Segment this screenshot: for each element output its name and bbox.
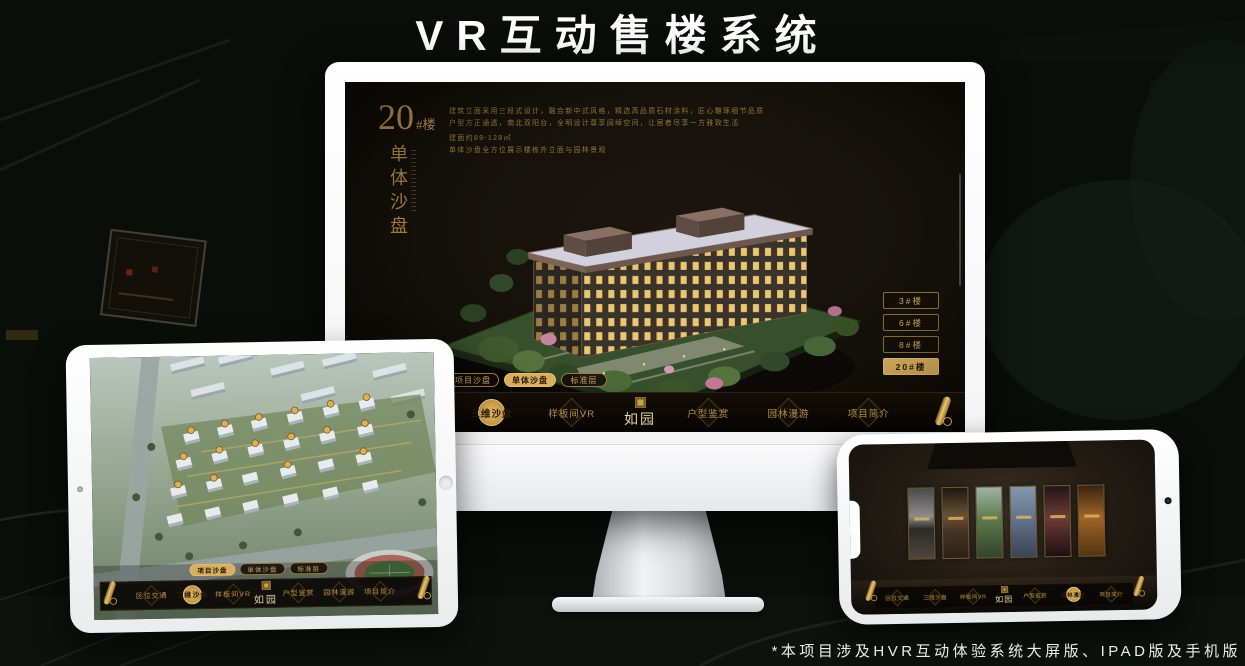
sub-tab-single-sandbox[interactable]: 单体沙盘 [504, 373, 556, 387]
scene-thumbnail[interactable] [1077, 484, 1105, 556]
monitor-stand-base [552, 597, 764, 612]
sub-tab-project-sandbox[interactable]: 项目沙盘 [447, 373, 499, 387]
description-line: 建面约89-128㎡ [449, 133, 789, 145]
sub-tab-standard-floor[interactable]: 标准层 [289, 562, 328, 575]
nav-item-label: 三维沙盘 [470, 406, 512, 420]
nav-item-label: 样板间VR [215, 589, 251, 600]
brand-logo: 如园 [254, 581, 278, 606]
description-line: 建筑立面采用三段式设计，融合新中式风格，精选高品质石材涂料，匠心雕琢细节品质 [449, 106, 789, 118]
nav-item-label: 项目简介 [848, 406, 890, 420]
seal-icon [261, 581, 270, 590]
building-number-suffix: #楼 [416, 117, 436, 132]
monitor-stand-neck [592, 506, 726, 602]
floor-button-6[interactable]: 6#楼 [883, 314, 939, 331]
nav-item-3d-sandbox[interactable]: 三维沙盘 [919, 589, 951, 605]
ipad-screen: 项目沙盘 单体沙盘 标准层 区位交通 三维沙盘 样板间VR 如园 户型鉴赏 园林… [90, 352, 439, 620]
nav-item-label: 户型鉴赏 [1023, 591, 1047, 599]
scroll-ornament-icon [1130, 576, 1146, 597]
nav-item-garden-roam[interactable]: 园林漫游 [319, 582, 359, 602]
nav-item-label: 区位交通 [885, 593, 909, 601]
scene-thumbnail[interactable] [907, 487, 935, 559]
nav-item-label: 户型鉴赏 [283, 588, 315, 599]
nav-item-unit-plans[interactable]: 户型鉴赏 [680, 399, 736, 427]
screen-title-vertical: 单体沙盘 [385, 144, 411, 240]
nav-item-3d-sandbox[interactable]: 三维沙盘 [464, 399, 520, 427]
nav-item-label: 三维沙盘 [176, 589, 208, 600]
brand-logo-text: 如园 [254, 591, 278, 606]
nav-item-showroom-vr[interactable]: 样板间VR [544, 399, 600, 427]
scene-thumbnail[interactable] [1043, 485, 1071, 557]
scroll-ornament-icon [862, 581, 878, 602]
phone-notch [849, 501, 861, 559]
brand-logo-text: 如园 [624, 409, 656, 429]
nav-item-project-intro[interactable]: 项目简介 [1095, 586, 1127, 602]
phone-screen: 区位交通 三维沙盘 样板间VR 如园 户型鉴赏 园林漫游 项目简介 [849, 439, 1158, 614]
nav-item-location-traffic[interactable]: 区位交通 [131, 586, 171, 606]
scene-gallery [907, 484, 1105, 559]
nav-item-label: 园林漫游 [323, 587, 355, 598]
scene-thumbnail[interactable] [1009, 486, 1037, 558]
sub-tab-project-sandbox[interactable]: 项目沙盘 [189, 563, 235, 576]
nav-item-label: 项目简介 [1099, 590, 1123, 598]
front-camera-icon [77, 486, 83, 492]
scroll-ornament-icon [100, 582, 118, 606]
seal-icon [1001, 586, 1008, 593]
nav-item-project-intro[interactable]: 项目简介 [360, 582, 400, 602]
nav-item-garden-roam[interactable]: 园林漫游 [761, 399, 817, 427]
nav-item-label: 园林漫游 [767, 406, 809, 420]
building-number: 20#楼 [378, 96, 436, 138]
floor-selector: 3#楼 6#楼 8#楼 20#楼 [883, 292, 939, 375]
scene-thumbnail[interactable] [941, 487, 969, 559]
page-title: VR互动售楼系统 [0, 2, 1245, 63]
description-line: 单体沙盘全方位展示楼栋外立面与园林景观 [449, 145, 789, 157]
brand-logo: 如园 [624, 397, 656, 429]
floor-button-8[interactable]: 8#楼 [883, 336, 939, 353]
screen-scrollbar[interactable] [959, 174, 961, 286]
phone-device: 区位交通 三维沙盘 样板间VR 如园 户型鉴赏 园林漫游 项目简介 [836, 429, 1181, 625]
footnote-text: *本项目涉及HVR互动体验系统大屏版、IPAD版及手机版 [772, 640, 1241, 661]
nav-item-label: 户型鉴赏 [687, 406, 729, 420]
nav-item-showroom-vr[interactable]: 样板间VR [957, 588, 989, 604]
nav-item-location-traffic[interactable]: 区位交通 [881, 590, 913, 606]
phone-navbar: 区位交通 三维沙盘 样板间VR 如园 户型鉴赏 园林漫游 项目简介 [875, 583, 1133, 608]
nav-item-label: 样板间VR [548, 406, 595, 420]
scroll-ornament-icon [931, 397, 953, 427]
sub-tab-single-sandbox[interactable]: 单体沙盘 [239, 563, 285, 576]
nav-item-3d-sandbox[interactable]: 三维沙盘 [172, 585, 212, 605]
nav-item-showroom-vr[interactable]: 样板间VR [213, 584, 253, 604]
floor-button-20[interactable]: 20#楼 [883, 358, 939, 375]
nav-item-project-intro[interactable]: 项目简介 [841, 399, 897, 427]
nav-item-label: 区位交通 [136, 590, 168, 601]
stage: VR互动售楼系统 20#楼 单体沙盘 建筑立面采用三段式设计，融合新中式风格，精… [0, 0, 1245, 666]
nav-item-unit-plans[interactable]: 户型鉴赏 [1019, 587, 1051, 603]
nav-item-label: 样板间VR [960, 592, 987, 600]
floor-button-3[interactable]: 3#楼 [883, 292, 939, 309]
home-button[interactable] [439, 476, 453, 490]
ipad-navbar: 区位交通 三维沙盘 样板间VR 如园 户型鉴赏 园林漫游 项目简介 [100, 576, 432, 611]
nav-item-label: 三维沙盘 [923, 593, 947, 601]
building-description: 建筑立面采用三段式设计，融合新中式风格，精选高品质石材涂料，匠心雕琢细节品质 户… [449, 106, 789, 157]
brand-logo: 如园 [995, 586, 1013, 605]
front-camera-icon [1165, 498, 1172, 505]
sub-tab-standard-floor[interactable]: 标准层 [561, 373, 607, 387]
nav-item-garden-roam[interactable]: 园林漫游 [1057, 587, 1089, 603]
seal-icon [635, 397, 646, 408]
sandbox-sub-tabs: 项目沙盘 单体沙盘 标准层 [447, 373, 607, 387]
scene-thumbnail[interactable] [975, 486, 1003, 558]
nav-item-label: 项目简介 [364, 586, 396, 597]
ipad-sandbox-sub-tabs: 项目沙盘 单体沙盘 标准层 [189, 562, 328, 576]
ipad-device: 项目沙盘 单体沙盘 标准层 区位交通 三维沙盘 样板间VR 如园 户型鉴赏 园林… [66, 339, 459, 634]
nav-item-unit-plans[interactable]: 户型鉴赏 [278, 583, 318, 603]
description-line: 户型方正通透，南北双阳台，全明设计尊享阔绰空间，让居者尽享一方雅致生活 [449, 118, 789, 130]
building-number-value: 20 [378, 97, 414, 137]
nav-item-label: 园林漫游 [1061, 590, 1085, 598]
brand-logo-text: 如园 [995, 594, 1013, 605]
pavilion-roof-silhouette [927, 441, 1077, 470]
scroll-ornament-icon [414, 576, 432, 600]
